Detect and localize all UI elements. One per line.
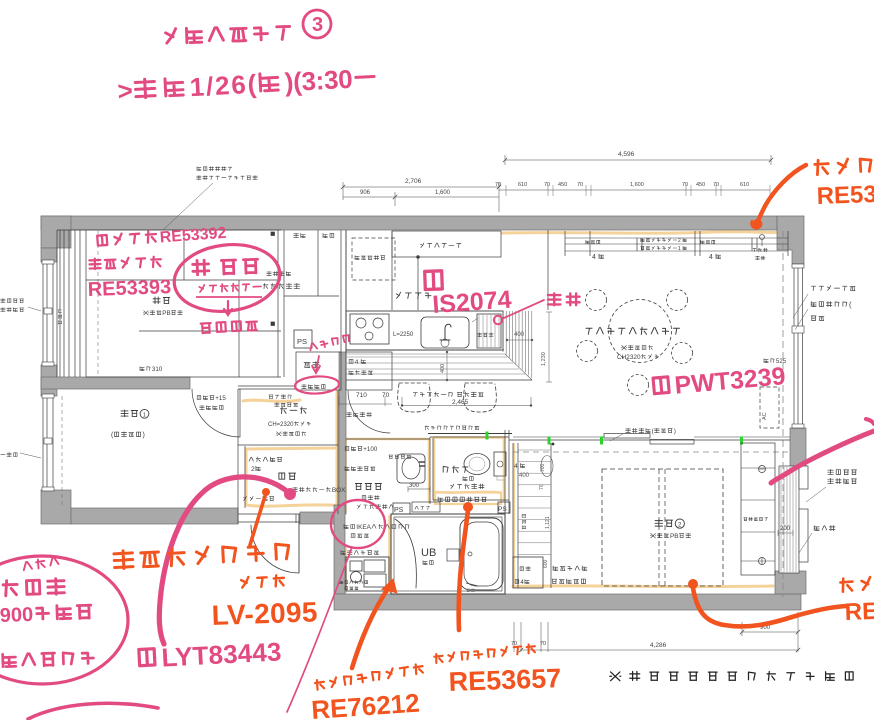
- svg-text:1,230: 1,230: [541, 352, 547, 366]
- svg-text:): ): [674, 428, 676, 435]
- svg-text:RE53393: RE53393: [87, 276, 171, 301]
- svg-text:610: 610: [740, 182, 749, 188]
- svg-text:+15: +15: [215, 395, 226, 402]
- svg-text:4: 4: [355, 359, 359, 366]
- svg-text:4: 4: [592, 254, 596, 261]
- svg-text:1,600: 1,600: [435, 190, 451, 196]
- svg-text:70: 70: [713, 182, 719, 188]
- svg-text:4: 4: [709, 254, 713, 261]
- svg-text:LV-2095: LV-2095: [211, 596, 318, 631]
- svg-text:PS: PS: [297, 337, 307, 346]
- svg-text:CH2320: CH2320: [617, 354, 641, 361]
- svg-text:>: >: [117, 75, 134, 106]
- svg-text:BOX: BOX: [332, 487, 346, 494]
- svg-text:LYT83443: LYT83443: [161, 636, 282, 672]
- svg-text:310: 310: [152, 366, 163, 373]
- svg-text:2: 2: [678, 238, 681, 244]
- svg-text:AC: AC: [762, 412, 768, 420]
- svg-text:200: 200: [780, 526, 791, 532]
- svg-text:1: 1: [143, 413, 146, 419]
- svg-text:4,286: 4,286: [650, 642, 667, 649]
- svg-text:4: 4: [514, 463, 518, 470]
- svg-text:70: 70: [682, 182, 688, 188]
- svg-text:2,706: 2,706: [405, 178, 422, 185]
- svg-text:): ): [143, 432, 145, 439]
- svg-text:300: 300: [409, 483, 420, 489]
- svg-text:4,596: 4,596: [618, 151, 635, 158]
- svg-text:2: 2: [251, 466, 255, 473]
- svg-text:400: 400: [440, 364, 446, 373]
- svg-text:1: 1: [678, 246, 681, 252]
- svg-text:600: 600: [543, 559, 549, 568]
- svg-text:1,600: 1,600: [630, 182, 644, 188]
- svg-text:IS2074: IS2074: [431, 286, 512, 319]
- svg-text:PS: PS: [394, 507, 404, 514]
- svg-text:RE5: RE5: [844, 597, 874, 626]
- svg-text:UB: UB: [421, 547, 436, 559]
- svg-text:70: 70: [540, 641, 546, 647]
- svg-text:2,465: 2,465: [452, 399, 469, 406]
- svg-text:PB: PB: [670, 533, 679, 540]
- svg-text:70: 70: [382, 392, 390, 399]
- svg-text:710: 710: [356, 392, 367, 399]
- svg-text:700: 700: [540, 463, 546, 472]
- svg-text:PS: PS: [498, 506, 507, 513]
- svg-text:70: 70: [495, 182, 501, 188]
- svg-text:1,121: 1,121: [545, 516, 551, 529]
- svg-text:RE53: RE53: [816, 181, 874, 210]
- svg-text:450: 450: [558, 182, 567, 188]
- svg-text:3: 3: [312, 14, 323, 36]
- svg-text:906: 906: [360, 190, 371, 196]
- svg-text:CH=2320: CH=2320: [268, 422, 294, 428]
- svg-text:70: 70: [577, 182, 583, 188]
- svg-text:IKEA: IKEA: [356, 524, 371, 531]
- svg-text:450: 450: [696, 182, 705, 188]
- svg-text:70: 70: [539, 484, 545, 490]
- svg-text:400: 400: [519, 473, 530, 479]
- svg-text:70: 70: [544, 182, 550, 188]
- svg-text:4: 4: [520, 579, 524, 586]
- svg-text:L=2250: L=2250: [393, 332, 414, 338]
- svg-text:400: 400: [514, 332, 525, 338]
- svg-text:)(3:30: )(3:30: [284, 64, 353, 98]
- svg-text:PB: PB: [162, 310, 170, 317]
- svg-text:610: 610: [518, 182, 527, 188]
- svg-text:900: 900: [0, 604, 34, 627]
- svg-text:RE53657: RE53657: [448, 663, 562, 697]
- svg-text:+100: +100: [363, 446, 378, 453]
- svg-text:2: 2: [678, 522, 682, 529]
